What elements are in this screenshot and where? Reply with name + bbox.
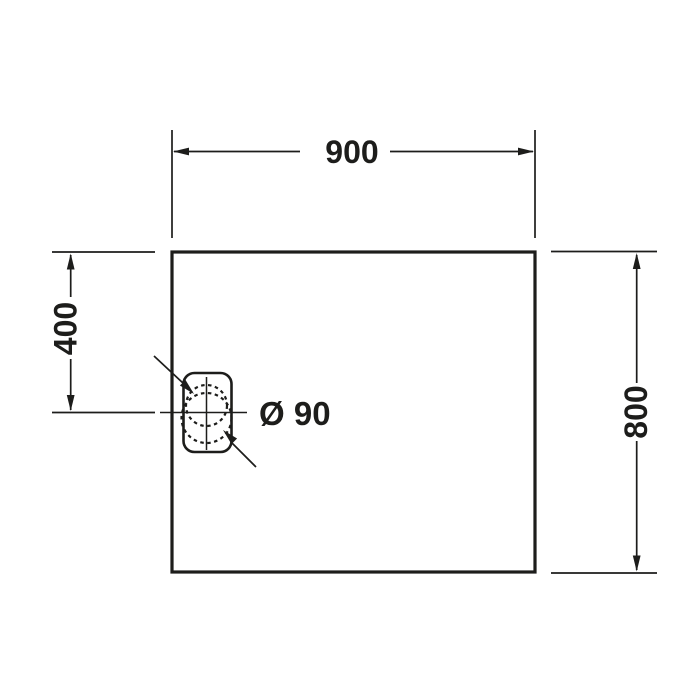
drain-diameter-label: Ø 90 — [259, 395, 331, 432]
drain-leader-arrowhead-lower — [223, 430, 237, 444]
drain-leader-line-upper — [154, 356, 184, 384]
offset-arrowhead-top — [67, 254, 75, 270]
width-dimension: 900 — [172, 130, 535, 238]
width-arrowhead-right — [518, 148, 534, 156]
drain-assembly: Ø 90 — [154, 356, 331, 467]
drain-leader-line-lower — [232, 443, 256, 467]
width-dimension-label: 900 — [325, 134, 378, 170]
drain-offset-dimension: 400 — [48, 252, 156, 413]
technical-drawing-canvas: 900 400 800 — [0, 0, 700, 700]
width-arrowhead-left — [173, 148, 189, 156]
height-arrowhead-bottom — [633, 556, 641, 572]
height-arrowhead-top — [633, 253, 641, 269]
shower-tray-drawing: 900 400 800 — [0, 0, 700, 700]
drain-offset-dimension-label: 400 — [48, 302, 84, 355]
offset-arrowhead-bottom — [67, 395, 75, 411]
height-dimension: 800 — [551, 252, 657, 574]
height-dimension-label: 800 — [618, 385, 654, 438]
